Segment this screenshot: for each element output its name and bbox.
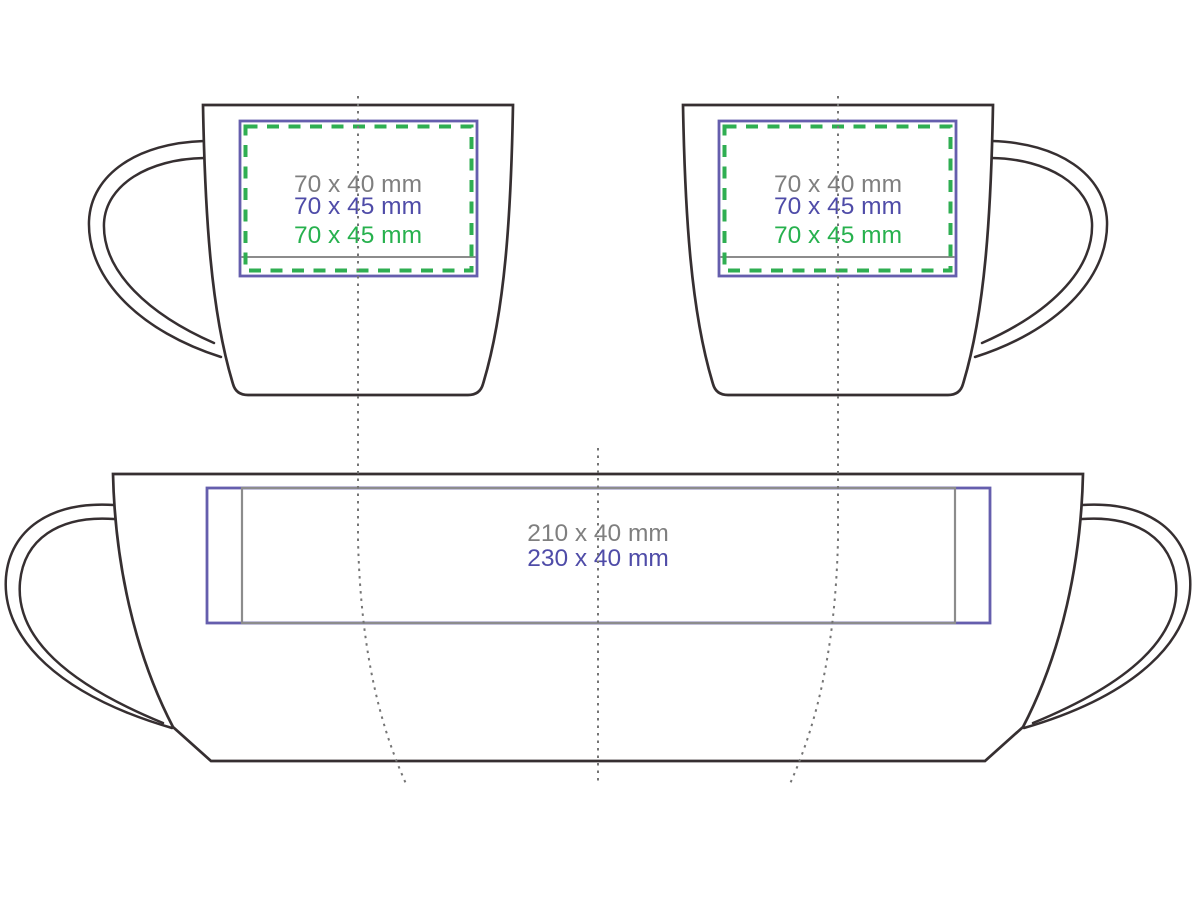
mug-print-template-diagram: 70 x 40 mm 70 x 45 mm 70 x 45 mm 70 x 40… [0,0,1200,900]
front-right-size-label-blue: 70 x 45 mm [774,193,902,220]
diagram-svg: 70 x 40 mm 70 x 45 mm 70 x 45 mm 70 x 40… [0,0,1200,900]
front-left-size-label-blue: 70 x 45 mm [294,193,422,220]
front-view-right: 70 x 40 mm 70 x 45 mm 70 x 45 mm [683,105,1107,395]
front-view-left: 70 x 40 mm 70 x 45 mm 70 x 45 mm [89,105,513,395]
front-right-size-label-green: 70 x 45 mm [774,222,902,249]
front-left-size-label-green: 70 x 45 mm [294,222,422,249]
front-right-handle-inner-icon [982,158,1092,343]
front-left-handle-inner-icon [104,158,214,343]
wrap-size-label-blue: 230 x 40 mm [527,545,669,572]
